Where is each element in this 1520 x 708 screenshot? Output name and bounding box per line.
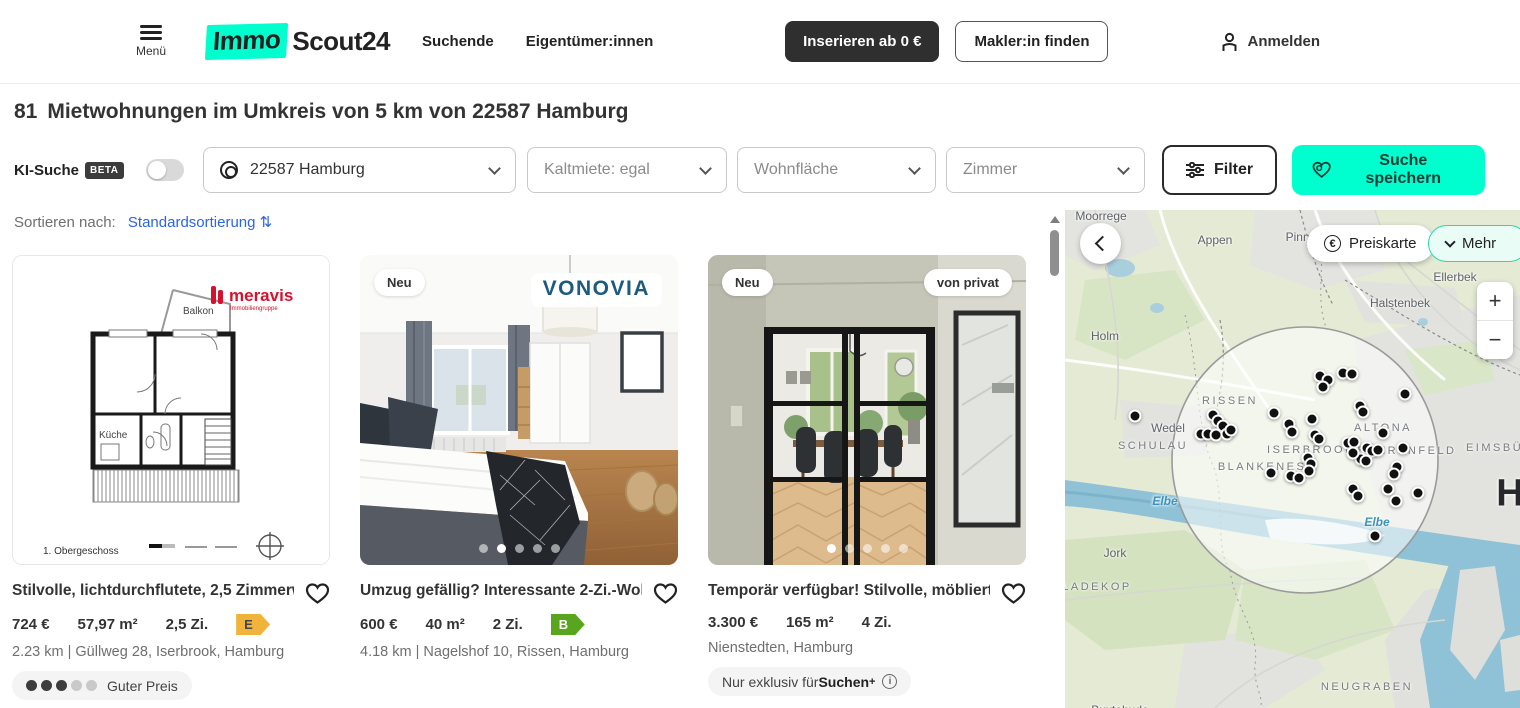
ki-suche-toggle[interactable] — [146, 159, 184, 181]
exclusive-prefix: Nur exklusiv für — [722, 674, 818, 690]
gallery-dot[interactable] — [863, 544, 872, 553]
map-marker[interactable] — [1265, 467, 1278, 480]
map-markers — [1065, 210, 1520, 708]
map-marker[interactable] — [1397, 442, 1410, 455]
listing-area: 165 m² — [786, 614, 834, 631]
map-marker[interactable] — [1360, 455, 1373, 468]
chevron-left-icon — [1095, 236, 1111, 252]
filter-button-label: Filter — [1214, 161, 1253, 179]
filter-bar: KI-Suche BETA 22587 Hamburg Kaltmiete: e… — [14, 147, 1503, 193]
scrollbar-thumb[interactable] — [1050, 230, 1059, 276]
chevron-down-icon — [488, 162, 501, 175]
von-privat-badge: von privat — [924, 269, 1012, 296]
floorplan-image: Balkon — [13, 256, 329, 564]
nav-suchende[interactable]: Suchende — [422, 33, 494, 50]
map-pane[interactable]: MoorregeAppenPinnebergEllerbekHalstenbek… — [1065, 210, 1520, 708]
euro-circle-icon: € — [1324, 235, 1341, 252]
listing-rooms: 4 Zi. — [862, 614, 892, 631]
vonovia-logo: VONOVIA — [531, 273, 662, 307]
listing-photo-dining[interactable]: Neu von privat — [708, 255, 1026, 565]
listing-price: 724 € — [12, 616, 50, 633]
logo-immo: Immo — [205, 23, 289, 60]
map-marker[interactable] — [1388, 468, 1401, 481]
listing-photo-floorplan[interactable]: Balkon — [12, 255, 330, 565]
results-count: 81 — [14, 100, 37, 123]
zoom-in-button[interactable]: + — [1477, 282, 1513, 320]
header-actions: Inserieren ab 0 € Makler:in finden Anmel… — [785, 21, 1320, 62]
zoom-out-button[interactable]: − — [1477, 321, 1513, 359]
rating-dot — [86, 680, 97, 691]
rating-dot — [26, 680, 37, 691]
gallery-dot[interactable] — [845, 544, 854, 553]
listing-address: 4.18 km | Nagelshof 10, Rissen, Hamburg — [360, 644, 678, 660]
energy-class-badge: E — [236, 614, 270, 635]
energy-class-badge: B — [551, 614, 585, 635]
filter-button[interactable]: Filter — [1162, 145, 1277, 195]
listing-card: Balkon — [12, 255, 330, 700]
site-header: Menü Immo Scout24 Suchende Eigentümer:in… — [0, 0, 1520, 84]
listing-title[interactable]: Umzug gefällig? Interessante 2-Zi.-Wohn… — [360, 582, 642, 600]
nav-eigentuemer[interactable]: Eigentümer:innen — [526, 33, 654, 50]
mehr-label: Mehr — [1462, 235, 1496, 252]
info-icon[interactable]: i — [882, 674, 897, 689]
map-marker[interactable] — [1377, 427, 1390, 440]
map-marker[interactable] — [1347, 447, 1360, 460]
menu-label: Menü — [136, 44, 166, 58]
inserieren-button[interactable]: Inserieren ab 0 € — [785, 21, 939, 62]
map-marker[interactable] — [1399, 388, 1412, 401]
gallery-dot[interactable] — [479, 544, 488, 553]
listing-card: Neu VONOVIA Umzug gefällig? Interessante… — [360, 255, 678, 700]
logo[interactable]: Immo Scout24 — [206, 24, 390, 59]
exclusive-bold: Suchen — [818, 674, 869, 690]
map-marker[interactable] — [1372, 444, 1385, 457]
sort-value-link[interactable]: Standardsortierung ⇅ — [128, 214, 272, 231]
heart-save-icon — [1312, 161, 1331, 179]
save-search-button[interactable]: Suche speichern — [1292, 145, 1485, 195]
dining-image — [708, 255, 1026, 565]
gallery-dot[interactable] — [881, 544, 890, 553]
listing-rooms: 2 Zi. — [493, 616, 523, 633]
map-collapse-button[interactable] — [1080, 223, 1121, 264]
listing-photo-bedroom[interactable]: Neu VONOVIA — [360, 255, 678, 565]
location-icon — [220, 161, 238, 179]
gallery-dot[interactable] — [533, 544, 542, 553]
header-nav: Suchende Eigentümer:innen — [422, 33, 653, 50]
wohnflaeche-value: Wohnfläche — [754, 161, 838, 179]
location-value: 22587 Hamburg — [250, 161, 365, 179]
map-marker[interactable] — [1346, 368, 1359, 381]
floorplan-kueche-label: Küche — [99, 430, 128, 441]
chevron-down-icon — [1444, 236, 1455, 247]
map-marker[interactable] — [1317, 381, 1330, 394]
map-marker[interactable] — [1313, 433, 1326, 446]
map-marker[interactable] — [1293, 472, 1306, 485]
map-marker[interactable] — [1352, 490, 1365, 503]
login-button[interactable]: Anmelden — [1220, 32, 1320, 52]
listing-title[interactable]: Stilvolle, lichtdurchflutete, 2,5 Zimmer… — [12, 582, 294, 600]
favorite-heart-icon[interactable] — [305, 582, 330, 605]
zimmer-value: Zimmer — [963, 161, 1017, 179]
map-marker[interactable] — [1225, 424, 1238, 437]
ki-suche-group: KI-Suche BETA — [14, 159, 203, 181]
logo-scout: Scout24 — [292, 26, 390, 57]
chevron-down-icon — [1117, 162, 1130, 175]
listing-address: Nienstedten, Hamburg — [708, 640, 1026, 656]
kaltmiete-dropdown[interactable]: Kaltmiete: egal — [527, 147, 727, 193]
rating-dot — [56, 680, 67, 691]
favorite-heart-icon[interactable] — [1001, 582, 1026, 605]
listing-title[interactable]: Temporär verfügbar! Stilvolle, möblierte… — [708, 582, 990, 600]
map-marker[interactable] — [1306, 413, 1319, 426]
beta-badge: BETA — [85, 162, 123, 179]
map-marker[interactable] — [1357, 406, 1370, 419]
map-marker[interactable] — [1390, 495, 1403, 508]
map-marker[interactable] — [1382, 483, 1395, 496]
page-title: 81Mietwohnungen im Umkreis von 5 km von … — [14, 100, 629, 124]
menu-button[interactable]: Menü — [136, 25, 166, 58]
chevron-down-icon — [908, 162, 921, 175]
map-marker[interactable] — [1286, 426, 1299, 439]
ki-suche-label: KI-Suche — [14, 162, 79, 179]
toggle-knob — [148, 161, 166, 179]
location-dropdown[interactable]: 22587 Hamburg — [203, 147, 516, 193]
price-rating-pill: Guter Preis — [12, 671, 192, 700]
gallery-dots — [708, 544, 1026, 553]
list-scrollbar — [1046, 210, 1065, 708]
chevron-down-icon — [699, 162, 712, 175]
scroll-up-arrow[interactable] — [1050, 216, 1060, 223]
svg-text:Immobiliengruppe: Immobiliengruppe — [230, 306, 278, 312]
sort-label: Sortieren nach: — [14, 214, 116, 231]
svg-text:meravis: meravis — [229, 286, 293, 305]
kaltmiete-value: Kaltmiete: egal — [544, 161, 650, 179]
svg-text:1. Obergeschoss: 1. Obergeschoss — [43, 546, 119, 557]
sliders-icon — [1186, 162, 1204, 178]
login-label: Anmelden — [1247, 33, 1320, 50]
hamburger-icon — [140, 25, 162, 40]
neu-badge: Neu — [722, 269, 773, 296]
rating-dot — [41, 680, 52, 691]
listing-price: 600 € — [360, 616, 398, 633]
save-search-label: Suche speichern — [1341, 152, 1465, 188]
listing-rooms: 2,5 Zi. — [166, 616, 209, 633]
person-icon — [1220, 32, 1239, 52]
mehr-button[interactable]: Mehr — [1428, 225, 1520, 262]
listing-address: 2.23 km | Güllweg 28, Iserbrook, Hamburg — [12, 644, 330, 660]
preiskarte-button[interactable]: € Preiskarte — [1307, 225, 1434, 262]
rating-dot — [71, 680, 82, 691]
neu-badge: Neu — [374, 269, 425, 296]
gallery-dot[interactable] — [827, 544, 836, 553]
favorite-heart-icon[interactable] — [653, 582, 678, 605]
map-zoom-controls: + − — [1477, 282, 1513, 359]
price-rating-label: Guter Preis — [107, 678, 178, 694]
wohnflaeche-dropdown[interactable]: Wohnfläche — [737, 147, 936, 193]
map-marker[interactable] — [1412, 487, 1425, 500]
map-marker[interactable] — [1129, 410, 1142, 423]
svg-text:Balkon: Balkon — [183, 306, 214, 317]
listing-area: 40 m² — [426, 616, 465, 633]
exclusive-plus: + — [869, 676, 875, 688]
gallery-dot[interactable] — [551, 544, 560, 553]
map-marker[interactable] — [1369, 530, 1382, 543]
preiskarte-label: Preiskarte — [1349, 235, 1417, 252]
gallery-dot[interactable] — [497, 544, 506, 553]
gallery-dot[interactable] — [515, 544, 524, 553]
results-list: Balkon — [12, 255, 1026, 700]
listing-price: 3.300 € — [708, 614, 758, 631]
exclusive-pill: Nur exklusiv für Suchen + i — [708, 667, 911, 696]
price-rating-dots — [26, 680, 101, 691]
makler-finden-button[interactable]: Makler:in finden — [955, 21, 1108, 62]
gallery-dot[interactable] — [899, 544, 908, 553]
zimmer-dropdown[interactable]: Zimmer — [946, 147, 1145, 193]
gallery-dots — [360, 544, 678, 553]
results-title: Mietwohnungen im Umkreis von 5 km von 22… — [47, 100, 628, 123]
listing-area: 57,97 m² — [78, 616, 138, 633]
listing-card: Neu von privat Temporär verfügbar! Stilv… — [708, 255, 1026, 700]
sort-row: Sortieren nach: Standardsortierung ⇅ — [14, 213, 272, 231]
map-marker[interactable] — [1268, 407, 1281, 420]
